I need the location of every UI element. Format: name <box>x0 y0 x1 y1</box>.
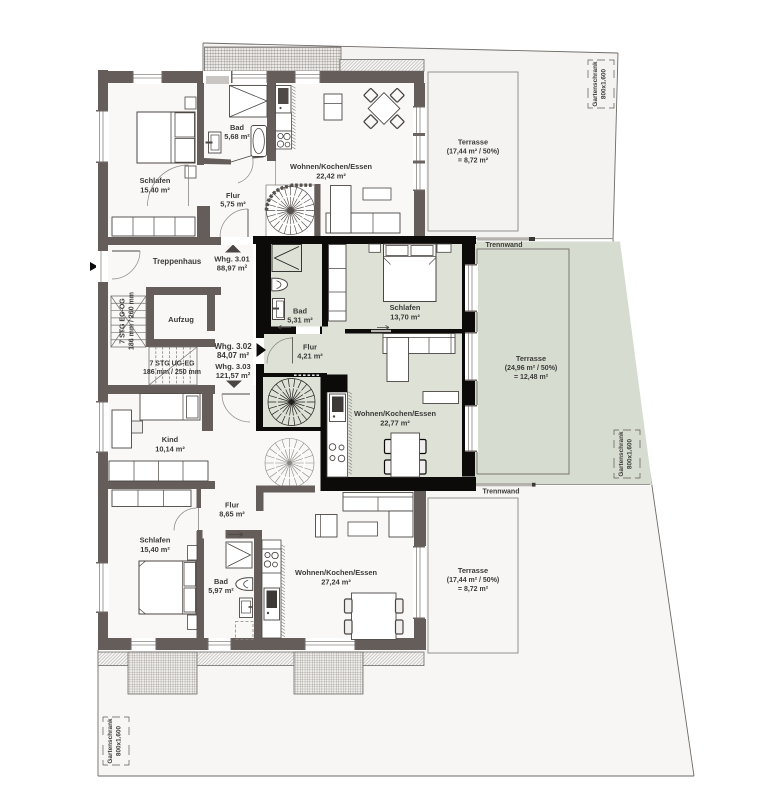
svg-text:Terrasse: Terrasse <box>458 138 488 147</box>
svg-text:5,97 m²: 5,97 m² <box>208 586 234 595</box>
svg-text:= 8,72 m²: = 8,72 m² <box>458 158 489 165</box>
svg-text:5,68 m²: 5,68 m² <box>224 132 250 141</box>
svg-text:15,40 m²: 15,40 m² <box>140 186 170 195</box>
svg-text:Bad: Bad <box>214 577 228 586</box>
svg-text:Schlafen: Schlafen <box>140 176 171 185</box>
svg-text:(17,44 m² / 50%): (17,44 m² / 50%) <box>447 149 500 156</box>
svg-text:Kind: Kind <box>162 435 179 444</box>
svg-text:(17,44 m² / 50%): (17,44 m² / 50%) <box>447 577 500 584</box>
svg-text:22,42 m²: 22,42 m² <box>316 172 346 181</box>
svg-text:Whg. 3.02: Whg. 3.02 <box>214 342 252 351</box>
svg-text:5,75 m²: 5,75 m² <box>220 200 246 209</box>
svg-text:121,57 m²: 121,57 m² <box>216 371 251 380</box>
svg-text:Terrasse: Terrasse <box>458 566 488 575</box>
svg-text:Wohnen/Kochen/Essen: Wohnen/Kochen/Essen <box>295 568 377 577</box>
svg-text:27,24 m²: 27,24 m² <box>321 578 351 587</box>
svg-text:Wohnen/Kochen/Essen: Wohnen/Kochen/Essen <box>354 409 436 418</box>
svg-text:7 STG EG-OG: 7 STG EG-OG <box>120 298 127 344</box>
svg-text:(24,96 m² / 50%): (24,96 m² / 50%) <box>505 365 558 372</box>
svg-text:Flur: Flur <box>225 501 239 510</box>
svg-text:4,21 m²: 4,21 m² <box>297 352 323 361</box>
svg-text:Aufzug: Aufzug <box>168 315 194 324</box>
svg-text:Schlafen: Schlafen <box>390 303 421 312</box>
svg-text:Schlafen: Schlafen <box>140 536 171 545</box>
svg-text:= 12,48 m²: = 12,48 m² <box>514 374 549 381</box>
svg-text:88,97 m²: 88,97 m² <box>217 264 248 273</box>
svg-text:Terrasse: Terrasse <box>516 354 546 363</box>
svg-text:7 STG UG-EG: 7 STG UG-EG <box>149 361 195 368</box>
svg-text:Bad: Bad <box>293 307 307 316</box>
svg-text:Whg. 3.03: Whg. 3.03 <box>215 362 250 371</box>
svg-text:800x1.600: 800x1.600 <box>116 725 123 756</box>
svg-text:Wohnen/Kochen/Essen: Wohnen/Kochen/Essen <box>290 162 372 171</box>
svg-text:186 mm / 260 mm: 186 mm / 260 mm <box>129 292 136 350</box>
svg-text:= 8,72 m²: = 8,72 m² <box>458 586 489 593</box>
svg-text:Gartenschrank: Gartenschrank <box>618 431 625 477</box>
svg-text:84,07 m²: 84,07 m² <box>217 351 249 360</box>
svg-text:13,70 m²: 13,70 m² <box>390 313 420 322</box>
svg-text:22,77 m²: 22,77 m² <box>380 419 410 428</box>
svg-text:Flur: Flur <box>303 343 317 352</box>
svg-text:Trennwand: Trennwand <box>483 489 520 496</box>
svg-text:8,65 m²: 8,65 m² <box>219 510 245 519</box>
svg-text:Bad: Bad <box>230 123 244 132</box>
svg-text:10,14 m²: 10,14 m² <box>155 445 185 454</box>
svg-text:Gartenschrank: Gartenschrank <box>107 718 114 764</box>
svg-text:800x1.600: 800x1.600 <box>601 68 608 99</box>
svg-text:186 mm / 250 mm: 186 mm / 250 mm <box>143 369 201 376</box>
svg-text:Treppenhaus: Treppenhaus <box>153 257 202 266</box>
svg-text:Trennwand: Trennwand <box>486 242 523 249</box>
svg-text:15,40 m²: 15,40 m² <box>140 545 170 554</box>
svg-text:800x1.600: 800x1.600 <box>627 438 634 469</box>
svg-text:5,31 m²: 5,31 m² <box>287 316 313 325</box>
svg-text:Whg. 3.01: Whg. 3.01 <box>214 255 250 264</box>
svg-text:Gartenschrank: Gartenschrank <box>592 61 599 107</box>
